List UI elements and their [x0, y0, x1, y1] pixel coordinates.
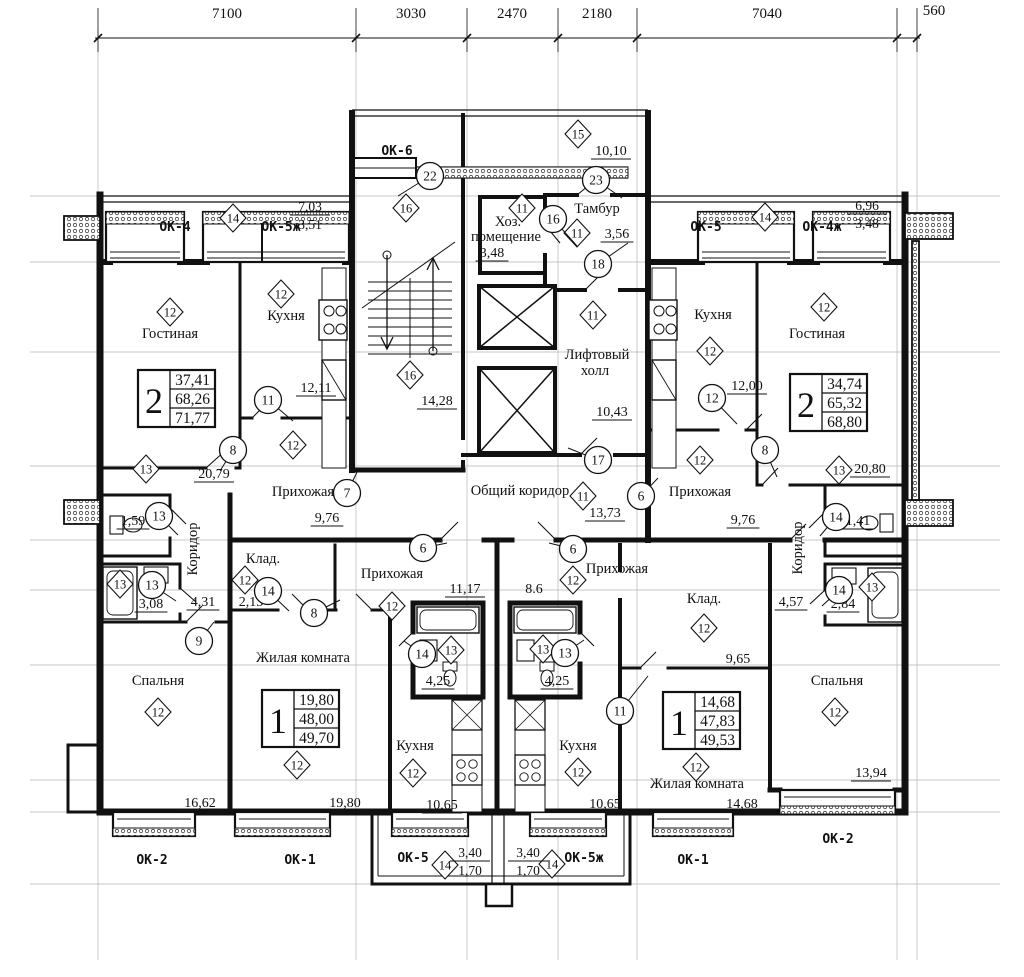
- room-area-tambour: 3,56: [605, 227, 630, 242]
- window-label-ok2-br: ОК-2: [822, 832, 853, 847]
- room-name-living-bottom-left: Жилая комната: [256, 650, 351, 666]
- floor-type-marker-bath-bottom-right: 13: [537, 643, 550, 657]
- room-area-hall-left: 9,76: [315, 511, 340, 526]
- window-label-ok5zh-bb: ОК-5ж: [564, 851, 603, 866]
- room-area-bedroom-left: 16,62: [184, 796, 216, 811]
- wall-pilaster: [64, 216, 100, 240]
- door-mark-dm6-br: 6: [570, 542, 577, 557]
- window-label-ok4-tl: ОК-4: [159, 220, 190, 235]
- door-mark-dm13-wc-left: 13: [152, 509, 166, 524]
- door-mark-dm16: 16: [546, 212, 560, 227]
- top-dimension: 2180: [582, 6, 612, 22]
- floor-type-marker-utility: 11: [516, 202, 528, 216]
- door-mark-dm7: 7: [344, 486, 351, 501]
- wall-pilaster: [64, 500, 100, 524]
- room-name-corridor-left: Коридор: [185, 522, 201, 575]
- window-label-ok1-bl: ОК-1: [284, 853, 315, 868]
- room-area-bath-bottom-right: 4,25: [545, 674, 570, 689]
- top-dimension: 7100: [212, 6, 242, 22]
- apartment-living-area-apt2-right: 34,74: [827, 376, 862, 393]
- door-mark-dm14-wc-right: 14: [829, 510, 843, 525]
- room-name-kitchen-bottom-left: Кухня: [396, 738, 434, 754]
- balcony-area-top-fr-tl: 7,03: [298, 199, 322, 214]
- floor-type-marker-storage-bottom-left: 12: [239, 574, 252, 588]
- floor-type-marker-entry-porch: 15: [572, 128, 585, 142]
- balcony-area-bottom-fr-br: 1,70: [516, 863, 540, 878]
- door-mark-dm8-bl: 8: [311, 606, 318, 621]
- apartment-living-area-apt2-left: 37,41: [175, 372, 210, 389]
- floor-type-marker-hall-bottom-left: 12: [386, 600, 399, 614]
- window-label-ok4zh-tr: ОК-4ж: [802, 220, 841, 235]
- apartment-total-area-apt1-left: 49,70: [299, 730, 334, 747]
- room-area-wc-left: 1,59: [121, 514, 146, 529]
- floor-type-marker-living-right: 12: [818, 301, 831, 315]
- floor-type-marker-bath-right: 13: [866, 581, 879, 595]
- window-label-ok2-bl: ОК-2: [136, 853, 167, 868]
- room-area-corridor-right: 4,57: [779, 595, 804, 610]
- room-name-lift-hall: Лифтовый: [565, 347, 630, 363]
- balcony-area-top-fr-br: 3,40: [516, 845, 540, 860]
- floor-type-marker-fm14-balc-br: 14: [546, 858, 559, 872]
- door-mark-dm12-right: 12: [705, 391, 719, 406]
- floor-type-marker-living-bottom-right: 12: [690, 761, 703, 775]
- room-area-living-bottom-left: 19,80: [329, 796, 361, 811]
- door-mark-dm14-storage-bl: 14: [261, 584, 275, 599]
- room-area-bath-left: 3,08: [139, 597, 164, 612]
- balcony-area-bottom-fr-tl: 3,51: [298, 217, 322, 232]
- apartment-floor-area-apt2-left: 68,26: [175, 391, 210, 408]
- room-area-kitchen-left: 12,11: [301, 381, 332, 396]
- floor-type-marker-hall-left: 12: [287, 439, 300, 453]
- apartment-total-area-apt2-right: 68,80: [827, 414, 862, 431]
- door-leaf: [356, 594, 372, 610]
- room-name-kitchen-right: Кухня: [694, 307, 732, 323]
- window-label-ok6: ОК-6: [381, 144, 412, 159]
- door-mark-dm11-left: 11: [262, 393, 275, 408]
- room-area-utility: 3,48: [480, 246, 505, 261]
- floor-type-marker-fm14-balc-tl: 14: [227, 212, 240, 226]
- apartment-total-area-apt1-right: 49,53: [700, 732, 735, 749]
- room-area-living-bottom-right: 14,68: [726, 797, 758, 812]
- apartment-total-area-apt2-left: 71,77: [175, 410, 210, 427]
- door-mark-dm17: 17: [591, 453, 605, 468]
- floor-type-marker-tambour: 11: [571, 227, 583, 241]
- room-name-hall-right: Прихожая: [669, 484, 732, 500]
- stove: [515, 755, 545, 785]
- door-mark-dm14-bath-right: 14: [832, 583, 846, 598]
- room-name-living-right: Гостиная: [789, 326, 845, 342]
- apartment-rooms-count-apt1-right: 1: [670, 703, 688, 743]
- room-area-lift-hall: 10,43: [596, 405, 628, 420]
- room-area-bedroom-right: 13,94: [855, 766, 887, 781]
- floor-type-marker-storage-bottom-right: 12: [698, 622, 711, 636]
- room-area-hall-right: 9,76: [731, 513, 756, 528]
- room-area-kitchen-bottom-left: 10,65: [426, 798, 458, 813]
- floor-type-marker-living-bottom-left: 12: [291, 759, 304, 773]
- room-area-corridor-left: 4,31: [191, 595, 216, 610]
- room-name-hall-bottom-right: Прихожая: [586, 561, 649, 577]
- floor-type-marker-kitchen-bottom-right: 12: [572, 766, 585, 780]
- door-mark-dm6-right: 6: [638, 489, 645, 504]
- balcony-pier: [486, 884, 512, 906]
- apartment-floor-area-apt2-right: 65,32: [827, 395, 862, 412]
- door-leaf: [762, 468, 778, 485]
- floor-type-marker-bath-left: 13: [114, 578, 127, 592]
- balcony-area-bottom-fr-bl: 1,70: [458, 863, 482, 878]
- floor-type-marker-common-corridor: 11: [577, 490, 589, 504]
- room-name-corridor-right: Коридор: [790, 521, 806, 574]
- room-name-storage-bottom-left: Клад.: [246, 551, 280, 567]
- room-area-common-corridor: 13,73: [589, 506, 621, 521]
- room-name-bedroom-right: Спальня: [811, 673, 864, 689]
- room-area-storage-bottom-right: 9,65: [726, 652, 751, 667]
- door-leaf: [746, 414, 762, 430]
- door-leaf: [580, 632, 594, 646]
- room-area-entry-porch: 10,10: [595, 144, 627, 159]
- floor-type-marker-lift-hall: 11: [587, 309, 599, 323]
- door-mark-dm9: 9: [196, 634, 203, 649]
- door-leaf: [399, 632, 413, 646]
- door-mark-dm8-right: 8: [762, 443, 769, 458]
- elevator-shafts: [479, 286, 555, 453]
- floor-type-marker-fm14-balc-tr: 14: [759, 211, 772, 225]
- room-name-hall-bottom-left: Прихожая: [361, 566, 424, 582]
- wall-pilaster: [905, 213, 953, 239]
- floor-type-marker-bath-bottom-left: 13: [445, 644, 458, 658]
- apartment-floor-area-apt1-right: 47,83: [700, 713, 735, 730]
- door-mark-dm8-left: 8: [230, 443, 237, 458]
- door-mark-dm23: 23: [589, 173, 603, 188]
- floor-type-marker-fm13-tl: 13: [140, 463, 153, 477]
- floor-type-marker-kitchen-left: 12: [275, 288, 288, 302]
- apartment-rooms-count-apt2-left: 2: [145, 381, 163, 421]
- apartment-rooms-count-apt1-left: 1: [269, 701, 287, 741]
- room-area-hall-bottom-right: 8.6: [525, 582, 543, 597]
- toilet: [880, 514, 893, 532]
- door-mark-dm14-bath-bl: 14: [415, 647, 429, 662]
- floor-type-marker-bedroom-left: 12: [152, 706, 165, 720]
- floor-type-marker-living-left: 12: [164, 306, 177, 320]
- room-area-living-left: 20,79: [198, 467, 230, 482]
- room-name2-lift-hall: холл: [581, 363, 609, 379]
- floor-type-marker-kitchen-bottom-left: 12: [407, 767, 420, 781]
- room-name-hall-left: Прихожая: [272, 484, 335, 500]
- door-mark-dm6-bl: 6: [420, 541, 427, 556]
- door-leaf: [538, 522, 556, 540]
- door-mark-dm11-br: 11: [614, 704, 627, 719]
- room-area-kitchen-bottom-right: 10,65: [589, 797, 621, 812]
- door-mark-dm13-bath-br: 13: [558, 646, 572, 661]
- door-leaf: [810, 590, 825, 604]
- door-leaf: [640, 652, 656, 668]
- window-label-ok5zh-tl: ОК-5ж: [261, 220, 300, 235]
- floor-type-marker-stairwell: 16: [404, 369, 417, 383]
- window-label-ok1-br: ОК-1: [677, 853, 708, 868]
- room-area-bath-bottom-left: 4,25: [426, 674, 451, 689]
- floor-type-marker-hall-right: 12: [694, 454, 707, 468]
- balcony-area-top-fr-bl: 3,40: [458, 845, 482, 860]
- window-label-ok5-tr: ОК-5: [690, 220, 721, 235]
- floor-type-marker-fm13-tr: 13: [833, 464, 846, 478]
- wall-pilaster: [905, 500, 953, 526]
- stairwell-stairs: [362, 242, 455, 358]
- top-dimension: 7040: [752, 6, 782, 22]
- room-name-kitchen-left: Кухня: [267, 308, 305, 324]
- door-mark-dm13-bath-left: 13: [145, 578, 159, 593]
- stove: [452, 755, 482, 785]
- room-area-hall-bottom-left: 11,17: [450, 582, 481, 597]
- apartment-living-area-apt1-left: 19,80: [299, 692, 334, 709]
- room-area-kitchen-right: 12,00: [731, 379, 763, 394]
- room-name2-utility: помещение: [471, 229, 541, 245]
- room-area-living-right: 20,80: [854, 462, 886, 477]
- floor-type-marker-fm16-upper: 16: [400, 202, 413, 216]
- floor-type-marker-bedroom-right: 12: [829, 706, 842, 720]
- apartment-living-area-apt1-right: 14,68: [700, 694, 735, 711]
- top-dimension: 3030: [396, 6, 426, 22]
- room-name-tambour: Тамбур: [574, 201, 619, 217]
- room-name-kitchen-bottom-right: Кухня: [559, 738, 597, 754]
- room-name-bedroom-left: Спальня: [132, 673, 185, 689]
- room-name-living-left: Гостиная: [142, 326, 198, 342]
- wall-pilaster: [912, 241, 919, 500]
- window-label-ok5-bb: ОК-5: [397, 851, 428, 866]
- top-dimension: 560: [923, 3, 946, 19]
- floor-plan-drawing: 71003030247021807040560Гостиная1220,79Ку…: [0, 0, 1024, 977]
- room-name-storage-bottom-right: Клад.: [687, 591, 721, 607]
- floor-type-marker-kitchen-right: 12: [704, 345, 717, 359]
- apartment-floor-area-apt1-left: 48,00: [299, 711, 334, 728]
- door-mark-dm22: 22: [423, 169, 437, 184]
- balcony-area-top-fr-tr: 6,96: [855, 198, 879, 213]
- top-dimension: 2470: [497, 6, 527, 22]
- floor-type-marker-hall-bottom-right: 12: [567, 574, 580, 588]
- room-area-stairwell: 14,28: [421, 394, 453, 409]
- door-leaf: [440, 522, 458, 540]
- door-mark-dm18: 18: [591, 257, 605, 272]
- balcony-area-bottom-fr-tr: 3,48: [855, 216, 879, 231]
- apartment-rooms-count-apt2-right: 2: [797, 385, 815, 425]
- room-name-common-corridor: Общий коридор: [471, 483, 570, 499]
